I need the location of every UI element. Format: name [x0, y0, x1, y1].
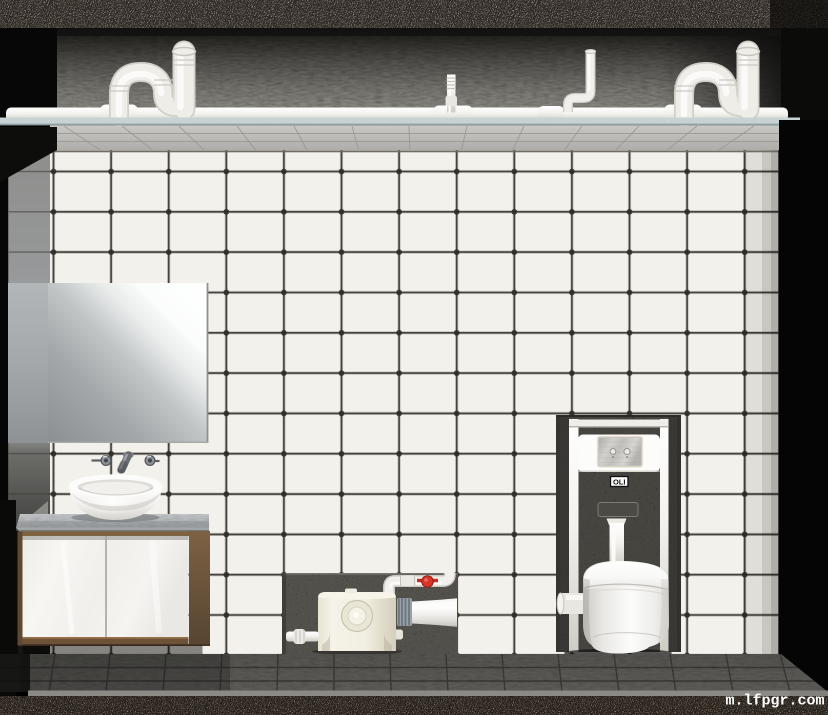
svg-text:OLI: OLI — [613, 477, 626, 486]
svg-text:m.lfpgr.com: m.lfpgr.com — [725, 693, 824, 710]
